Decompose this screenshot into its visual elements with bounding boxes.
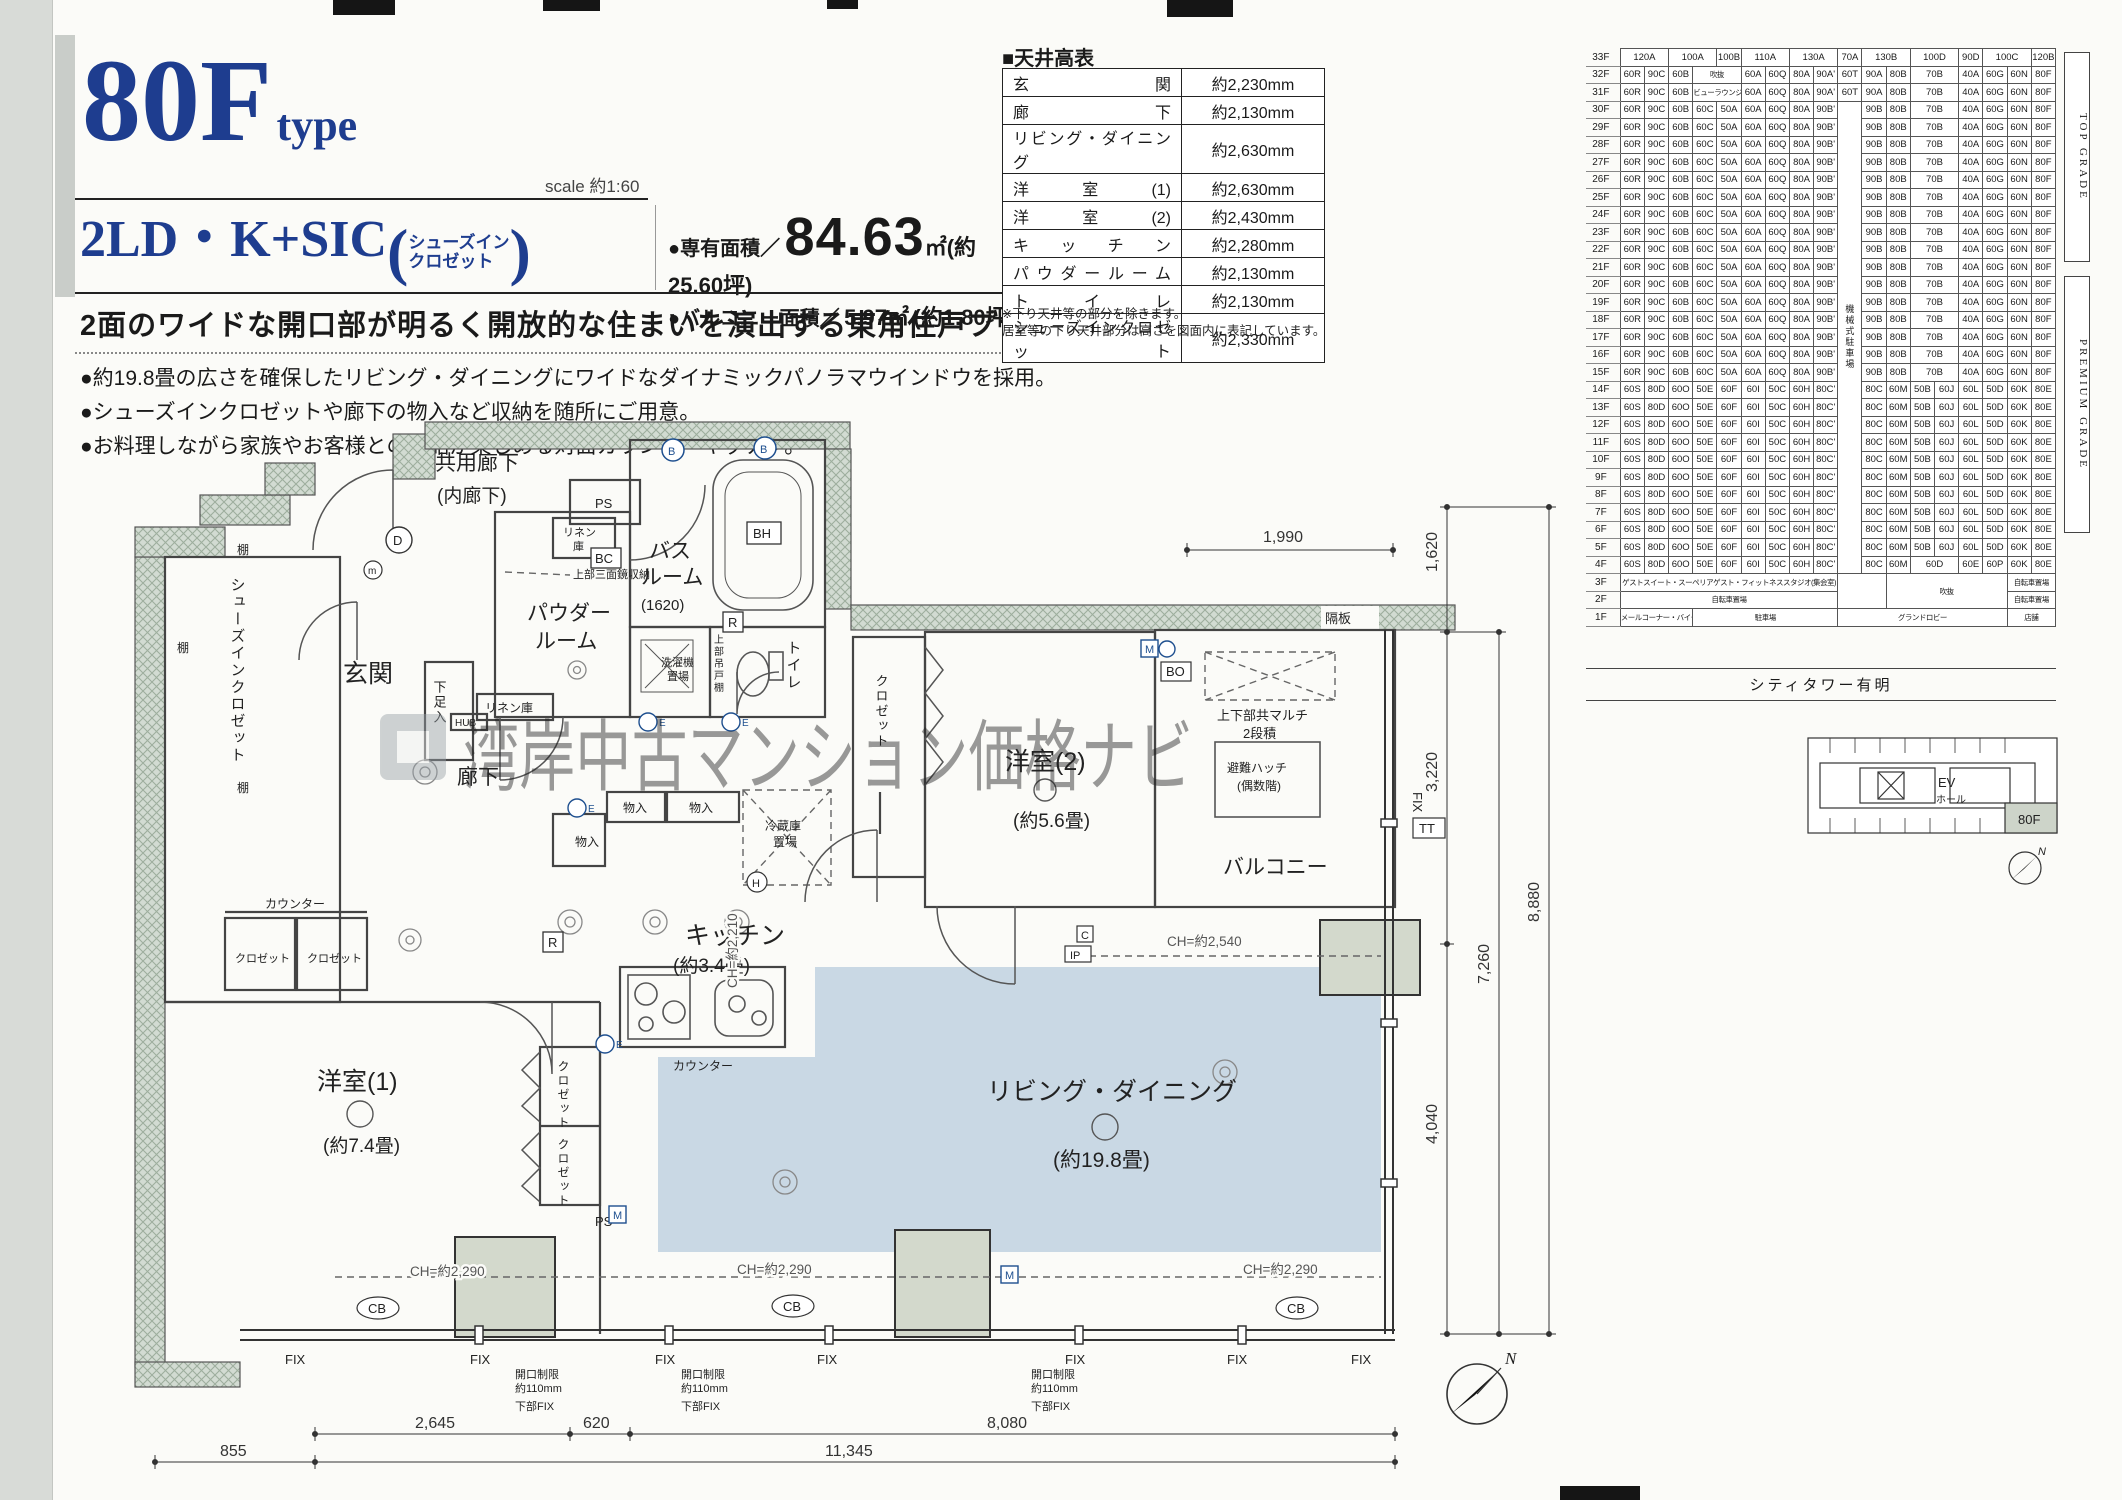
unit-type-cell: 70B (1910, 136, 1958, 154)
unit-type-cell: 60C (1693, 364, 1717, 382)
evac-hatch-label-1: 避難ハッチ (1227, 760, 1287, 775)
unit-type-cell: 60H (1789, 416, 1813, 434)
unit-type-title: 80F type (82, 42, 357, 160)
scan-mark (827, 0, 858, 9)
unit-type-cell: 40A (1959, 171, 1983, 189)
unit-type-cell: 80F (2031, 154, 2055, 172)
unit-type-cell: 90B' (1814, 101, 1838, 119)
floor-label: 4F (1586, 556, 1620, 574)
unit-type-cell: 50C (1765, 469, 1789, 487)
unit-type-cell: 60O (1669, 469, 1693, 487)
unit-type-cell: 80F (2031, 171, 2055, 189)
unit-type-cell: 60A (1741, 276, 1765, 294)
unit-type-cell: 90C (1644, 136, 1668, 154)
matrix-row: 8F60S80D60O50E60F60I50C60H80C'80C60M50B6… (1586, 486, 2056, 504)
unit-type-cell: 60O (1669, 486, 1693, 504)
unit-type-cell: 80F (2031, 329, 2055, 347)
unit-type-cell: 70B (1910, 119, 1958, 137)
unit-type-cell: 90A (1862, 66, 1886, 84)
svg-text:下部FIX: 下部FIX (681, 1399, 721, 1413)
unit-type-cell: メールコーナー・バイク置場 (1620, 609, 1693, 627)
e-marker: E (588, 804, 595, 815)
unit-type-cell: 50A (1717, 364, 1741, 382)
unit-type-cell: 60J (1935, 399, 1959, 417)
unit-type-cell: 60B (1669, 364, 1693, 382)
unit-type-cell: 90C (1644, 101, 1668, 119)
scan-mark (333, 0, 395, 15)
unit-type-cell: 50E (1693, 521, 1717, 539)
bedroom1-closet-label: クロゼット (556, 1060, 570, 1130)
unit-type-cell: 60C (1693, 276, 1717, 294)
unit-type-cell: 80A (1789, 119, 1813, 137)
dim-1620: 1,620 (1424, 532, 1441, 572)
scan-mark (543, 0, 600, 11)
unit-type-cell: 60A (1741, 311, 1765, 329)
unit-type-cell: 80E (2031, 416, 2055, 434)
unit-type-cell: 60G (1983, 189, 2007, 207)
unit-type-cell: 60F (1717, 504, 1741, 522)
room-name-cell: リビング・ダイニング (1003, 125, 1182, 174)
key-plan: EV ホール 80F N (1800, 708, 2065, 898)
unit-type-cell: 店舗 (2007, 609, 2055, 627)
unit-type-cell: 40A (1959, 119, 1983, 137)
unit-type-cell: 80E (2031, 451, 2055, 469)
unit-type-cell: 60H (1789, 399, 1813, 417)
unit-type-cell: 90C (1644, 84, 1668, 102)
counter-label: カウンター (673, 1059, 733, 1073)
powder-room-label-2: ルーム (535, 630, 597, 653)
unit-type-cell: 40A (1959, 241, 1983, 259)
unit-type-cell: 60L (1959, 434, 1983, 452)
unit-type-cell: 60N (2007, 224, 2031, 242)
common-corridor-label: 共用廊下 (435, 452, 519, 475)
unit-type-cell: 40A (1959, 189, 1983, 207)
unit-type-cell: 90B (1862, 241, 1886, 259)
unit-type-cell: 90C (1644, 119, 1668, 137)
unit-type-cell: 70B (1910, 329, 1958, 347)
premium-grade-label: PREMIUM GRADE (2064, 276, 2090, 533)
unit-type-cell: 60A (1741, 136, 1765, 154)
unit-type-cell: 60K (2007, 556, 2031, 574)
unit-type-cell: 60N (2007, 329, 2031, 347)
unit-type-cell: 60G (1983, 311, 2007, 329)
ch-2210: CH=約2,210 (725, 913, 740, 988)
page-left-margin (0, 0, 53, 1500)
dim-855: 855 (220, 1443, 247, 1460)
unit-type-cell: 60K (2007, 521, 2031, 539)
unit-type-cell: 50B (1910, 399, 1934, 417)
matrix-row: 26F60R90C60B60C50A60A60Q80A90B'90B80B70B… (1586, 171, 2056, 189)
unit-type-cell: 80B (1886, 346, 1910, 364)
unit-type-cell: 90B' (1814, 171, 1838, 189)
toilet-label: トイレ (785, 640, 802, 691)
unit-type-cell: 90B (1862, 346, 1886, 364)
unit-type-cell: 50A (1717, 311, 1741, 329)
floor-label: 30F (1586, 101, 1620, 119)
matrix-row: 15F60R90C60B60C50A60A60Q80A90B'90B80B70B… (1586, 364, 2056, 382)
unit-type-cell: 60O (1669, 381, 1693, 399)
matrix-row: 23F60R90C60B60C50A60A60Q80A90B'90B80B70B… (1586, 224, 2056, 242)
unit-type-cell: 60C (1693, 259, 1717, 277)
unit-type-cell: 50C (1765, 399, 1789, 417)
unit-type-cell: 60A (1741, 66, 1765, 84)
unit-type-cell: 50A (1717, 241, 1741, 259)
bedroom1-label: 洋室(1) (317, 1068, 398, 1096)
unit-type-cell: 60J (1935, 504, 1959, 522)
unit-type-cell: 60N (2007, 346, 2031, 364)
floor-label: 25F (1586, 189, 1620, 207)
unit-type-cell: 60G (1983, 154, 2007, 172)
unit-type-cell: 60B (1669, 171, 1693, 189)
unit-type-cell: 50D (1983, 399, 2007, 417)
living-dining-label: リビング・ダイニング (987, 1078, 1237, 1106)
c-marker: C (1081, 930, 1089, 942)
matrix-row: 5F60S80D60O50E60F60I50C60H80C'80C60M50B6… (1586, 539, 2056, 557)
unit-type-cell (1838, 574, 1886, 609)
unit-type-cell: 90B' (1814, 119, 1838, 137)
bh-marker: BH (753, 526, 771, 541)
unit-type-cell: 80A (1789, 154, 1813, 172)
evac-hatch-label-2: (偶数階) (1237, 778, 1281, 793)
unit-type-cell: 60Q (1765, 241, 1789, 259)
unit-type-cell: 80F (2031, 119, 2055, 137)
unit-type-cell: 60I (1741, 486, 1765, 504)
unit-type-cell: 60R (1620, 311, 1644, 329)
unit-type-cell: 60G (1983, 259, 2007, 277)
unit-type-cell: 60I (1741, 399, 1765, 417)
h-marker: H (752, 878, 760, 890)
unit-type-cell: 60I (1741, 521, 1765, 539)
unit-type-cell: 60G (1983, 119, 2007, 137)
unit-type-cell: 90B (1862, 364, 1886, 382)
unit-type-cell: 50D (1983, 381, 2007, 399)
unit-type-cell: 60B (1669, 66, 1693, 84)
unit-type-cell: 50A (1717, 206, 1741, 224)
unit-type-cell: 60R (1620, 154, 1644, 172)
matrix-row: 14F60S80D60O50E60F60I50C60H80C'80C60M50B… (1586, 381, 2056, 399)
unit-type-cell: 80B (1886, 189, 1910, 207)
unit-type-cell: 60M (1886, 416, 1910, 434)
unit-type-cell: 90B' (1814, 154, 1838, 172)
svg-text:約110mm: 約110mm (681, 1381, 728, 1395)
unit-type-cell: 80F (2031, 189, 2055, 207)
ceiling-height-cell: 約2,130mm (1182, 97, 1325, 125)
unit-type-cell: 90B (1862, 206, 1886, 224)
unit-type-cell: 60S (1620, 486, 1644, 504)
unit-type-cell: 40A (1959, 66, 1983, 84)
unit-type-cell: 80B (1886, 84, 1910, 102)
unit-type-cell: 80D (1644, 469, 1668, 487)
unit-type-cell: 90B (1862, 119, 1886, 137)
m-marker: M (1145, 644, 1154, 656)
unit-type-cell: 60Q (1765, 259, 1789, 277)
unit-type-cell: グランドロビー (1838, 609, 2007, 627)
divider (75, 198, 648, 200)
unit-type-cell: 50C (1765, 416, 1789, 434)
matrix-row: 22F60R90C60B60C50A60A60Q80A90B'90B80B70B… (1586, 241, 2056, 259)
bathroom-label-2: ルーム (641, 566, 703, 589)
unit-type-cell: 60L (1959, 469, 1983, 487)
svg-text:約110mm: 約110mm (1031, 1381, 1078, 1395)
unit-type-cell: 120A (1620, 49, 1668, 67)
dim-2645: 2,645 (415, 1415, 455, 1432)
matrix-row: 18F60R90C60B60C50A60A60Q80A90B'90B80B70B… (1586, 311, 2056, 329)
floor-plan-drawing: 隔板 (125, 322, 1580, 1477)
unit-type-word: type (277, 101, 358, 150)
unit-type-cell: 80B (1886, 311, 1910, 329)
unit-type-cell: 60R (1620, 276, 1644, 294)
unit-type-cell: 60K (2007, 469, 2031, 487)
unit-type-cell: 60I (1741, 469, 1765, 487)
floorplan-brochure-page: 80F type scale 約1:60 2LD・K+SIC(シューズインクロゼ… (0, 0, 2122, 1500)
unit-type-cell: 80A (1789, 136, 1813, 154)
unit-type-cell: 70B (1910, 84, 1958, 102)
unit-type-cell: 60K (2007, 399, 2031, 417)
unit-type-cell: 80F (2031, 206, 2055, 224)
svg-text:N: N (2038, 846, 2046, 858)
room-name-cell: 廊下 (1003, 97, 1182, 125)
matrix-row: 28F60R90C60B60C50A60A60Q80A90B'90B80B70B… (1586, 136, 2056, 154)
unit-type-cell: 60B (1669, 101, 1693, 119)
unit-type-cell: 60N (2007, 136, 2031, 154)
unit-type-cell: 60O (1669, 399, 1693, 417)
matrix-row: 17F60R90C60B60C50A60A60Q80A90B'90B80B70B… (1586, 329, 2056, 347)
unit-type-cell: 60A (1741, 294, 1765, 312)
floor-label: 16F (1586, 346, 1620, 364)
unit-type-cell: 60F (1717, 486, 1741, 504)
matrix-row: 13F60S80D60O50E60F60I50C60H80C'80C60M50B… (1586, 399, 2056, 417)
unit-type-cell: 60T (1838, 84, 1862, 102)
unit-type-cell: 90B' (1814, 329, 1838, 347)
unit-type-cell: 80C' (1814, 521, 1838, 539)
unit-type-cell: 80D (1644, 434, 1668, 452)
unit-type-cell: 60A (1741, 101, 1765, 119)
unit-type-cell: ゲストスイート・スーペリアゲスト・フィットネススタジオ(集会室) (1620, 574, 1838, 592)
compass-north-label: N (1504, 1349, 1518, 1368)
unit-type-cell: 80F (2031, 241, 2055, 259)
paren-close: ) (510, 216, 531, 287)
unit-type-cell: 60I (1741, 381, 1765, 399)
unit-type-cell: 60H (1789, 556, 1813, 574)
unit-type-cell: 60I (1741, 451, 1765, 469)
unit-type-cell: 60S (1620, 539, 1644, 557)
unit-type-cell: 60H (1789, 434, 1813, 452)
unit-type-cell: 90C (1644, 346, 1668, 364)
svg-text:FIX: FIX (817, 1352, 838, 1367)
room-name-cell: 玄関 (1003, 69, 1182, 97)
unit-type-cell: 80C (1862, 416, 1886, 434)
unit-type-cell: 80C (1862, 521, 1886, 539)
unit-type-cell: 90A (1862, 84, 1886, 102)
matrix-row: 20F60R90C60B60C50A60A60Q80A90B'90B80B70B… (1586, 276, 2056, 294)
unit-type-cell: 60B (1669, 259, 1693, 277)
unit-type-cell: 60R (1620, 259, 1644, 277)
unit-type-cell: 60O (1669, 521, 1693, 539)
floor-label: 13F (1586, 399, 1620, 417)
unit-type-cell: 60O (1669, 504, 1693, 522)
unit-type-cell: 50E (1693, 504, 1717, 522)
keyplan-unit-label: 80F (2018, 812, 2040, 827)
unit-type-cell: 50B (1910, 416, 1934, 434)
ceiling-table-row: 洋室(2)約2,430mm (1003, 202, 1325, 230)
matrix-row: 16F60R90C60B60C50A60A60Q80A90B'90B80B70B… (1586, 346, 2056, 364)
linen-label-2: 庫 (573, 539, 584, 553)
dim-8080: 8,080 (987, 1415, 1027, 1432)
unit-type-cell: 60N (2007, 294, 2031, 312)
unit-type-cell: 60C (1693, 294, 1717, 312)
unit-type-cell: 50E (1693, 539, 1717, 557)
floor-label: 27F (1586, 154, 1620, 172)
unit-type-cell: 60G (1983, 364, 2007, 382)
storage-label: 物入 (689, 801, 713, 815)
svg-text:FIX: FIX (655, 1352, 676, 1367)
ceiling-height-cell: 約2,130mm (1182, 258, 1325, 286)
matrix-row: 1Fメールコーナー・バイク置場駐車場グランドロビー店舗 (1586, 609, 2056, 627)
unit-type-cell: 60C (1693, 241, 1717, 259)
laundry-label-2: 置場 (667, 670, 689, 683)
unit-type-cell: 90C (1644, 189, 1668, 207)
unit-type-cell: 50D (1983, 451, 2007, 469)
header-accent-bar (55, 35, 75, 297)
unit-type-cell: 80A (1789, 171, 1813, 189)
unit-type-cell: 80B (1886, 364, 1910, 382)
unit-type-cell: 60K (2007, 539, 2031, 557)
unit-type-cell: 90B (1862, 329, 1886, 347)
unit-type-cell: 50D (1983, 434, 2007, 452)
unit-type-cell: 40A (1959, 311, 1983, 329)
living-dining-floor-zone (658, 967, 1381, 1252)
unit-type-cell: 60S (1620, 451, 1644, 469)
unit-type-cell: 60F (1717, 399, 1741, 417)
unit-type-cell: 50A (1717, 294, 1741, 312)
unit-type-cell: 60R (1620, 136, 1644, 154)
unit-type-cell: 50D (1983, 504, 2007, 522)
unit-type-cell: 80C' (1814, 451, 1838, 469)
matrix-row: 33F120A100A100B110A130A70A130B100D90D100… (1586, 49, 2056, 67)
floor-label: 5F (1586, 539, 1620, 557)
unit-type-cell: 40A (1959, 294, 1983, 312)
unit-type-cell: 40A (1959, 84, 1983, 102)
unit-type-cell: 60C (1693, 101, 1717, 119)
unit-type-cell: 70B (1910, 206, 1958, 224)
unit-type-cell: 50A (1717, 154, 1741, 172)
floor-label: 18F (1586, 311, 1620, 329)
unit-type-cell: 80C' (1814, 504, 1838, 522)
bedroom2-size: (約5.6畳) (1013, 810, 1090, 832)
unit-type-cell: 80C' (1814, 469, 1838, 487)
unit-type-cell: 50A (1717, 329, 1741, 347)
unit-type-cell: 60H (1789, 469, 1813, 487)
ceiling-height-cell: 約2,630mm (1182, 125, 1325, 174)
svg-text:約110mm: 約110mm (515, 1381, 562, 1395)
unit-type-cell: 50B (1910, 504, 1934, 522)
unit-type-cell: 80A (1789, 189, 1813, 207)
unit-type-cell: 80B (1886, 276, 1910, 294)
area1-label: ●専有面積／ (668, 238, 780, 260)
unit-type-cell: 50D (1983, 521, 2007, 539)
matrix-row: 9F60S80D60O50E60F60I50C60H80C'80C60M50B6… (1586, 469, 2056, 487)
unit-type-cell: 70A (1838, 49, 1862, 67)
floor-label: 31F (1586, 84, 1620, 102)
matrix-row: 4F60S80D60O50E60F60I50C60H80C'80C60M60D6… (1586, 556, 2056, 574)
scan-mark (1167, 0, 1233, 17)
ceiling-height-cell: 約2,430mm (1182, 202, 1325, 230)
unit-type-cell: 80F (2031, 259, 2055, 277)
hanging-cabinet-label: 上部吊戸棚 (712, 634, 724, 694)
unit-type-cell: 50E (1693, 451, 1717, 469)
unit-type-cell: 90B (1862, 294, 1886, 312)
area1-value: 84.63 (785, 207, 925, 267)
unit-type-cell: 90B (1862, 101, 1886, 119)
m-small-marker: m (368, 566, 376, 577)
unit-type-cell: 90C (1644, 241, 1668, 259)
unit-type-cell: 60C (1693, 189, 1717, 207)
unit-type-cell: 60M (1886, 486, 1910, 504)
r-marker: R (728, 615, 737, 630)
unit-type-cell: 70B (1910, 346, 1958, 364)
unit-type-cell: 60Q (1765, 171, 1789, 189)
r-marker: R (548, 935, 557, 950)
svg-text:FIX: FIX (1351, 1352, 1372, 1367)
powder-room-label-1: パウダー (527, 602, 611, 625)
unit-type-cell: 60G (1983, 329, 2007, 347)
unit-type-cell: 60B (1669, 241, 1693, 259)
unit-type-cell: 90C (1644, 364, 1668, 382)
unit-type-cell: 40A (1959, 136, 1983, 154)
unit-type-cell: 60N (2007, 154, 2031, 172)
unit-type-cell: 90C (1644, 154, 1668, 172)
unit-type-cell: 60C (1693, 224, 1717, 242)
unit-type-cell: 50A (1717, 101, 1741, 119)
unit-type-cell: 40A (1959, 364, 1983, 382)
floor-label: 19F (1586, 294, 1620, 312)
unit-type-cell: 60Q (1765, 101, 1789, 119)
unit-type-cell: 50E (1693, 381, 1717, 399)
floor-label: 2F (1586, 591, 1620, 609)
floor-label: 1F (1586, 609, 1620, 627)
unit-type-cell: 50E (1693, 469, 1717, 487)
b-marker: B (760, 444, 767, 456)
unit-type-cell: 90C (1644, 311, 1668, 329)
unit-type-cell: 90B (1862, 171, 1886, 189)
matrix-row: 3Fゲストスイート・スーペリアゲスト・フィットネススタジオ(集会室)吹抜自転車置… (1586, 574, 2056, 592)
storage-label: 物入 (575, 835, 599, 849)
multi-stack-label-2: 2段積 (1243, 726, 1276, 741)
unit-type-cell: 60L (1959, 539, 1983, 557)
unit-type-cell: 80F (2031, 136, 2055, 154)
unit-type-cell: 80E (2031, 469, 2055, 487)
unit-type-cell: 80C (1862, 434, 1886, 452)
unit-type-cell: 60R (1620, 346, 1644, 364)
unit-type-cell: 60B (1669, 136, 1693, 154)
unit-type-cell: 60G (1983, 224, 2007, 242)
unit-type-cell: 80F (2031, 311, 2055, 329)
unit-type-cell: 60Q (1765, 311, 1789, 329)
watermark-text: 湾岸中古マンション価格ナビ (463, 713, 1193, 801)
matrix-row: 12F60S80D60O50E60F60I50C60H80C'80C60M50B… (1586, 416, 2056, 434)
shelf-label: 棚 (237, 780, 249, 795)
floor-label: 14F (1586, 381, 1620, 399)
svg-text:FIX: FIX (1227, 1352, 1248, 1367)
unit-type-cell: 80F (2031, 276, 2055, 294)
unit-type-cell: 60R (1620, 206, 1644, 224)
unit-type-cell: 60O (1669, 451, 1693, 469)
unit-type-cell: 60B (1669, 206, 1693, 224)
laundry-label-1: 洗濯機 (661, 655, 694, 669)
unit-type-cell: 60M (1886, 556, 1910, 574)
unit-type-cell: 80C (1862, 469, 1886, 487)
layout-paren: シューズインクロゼット (408, 233, 509, 271)
